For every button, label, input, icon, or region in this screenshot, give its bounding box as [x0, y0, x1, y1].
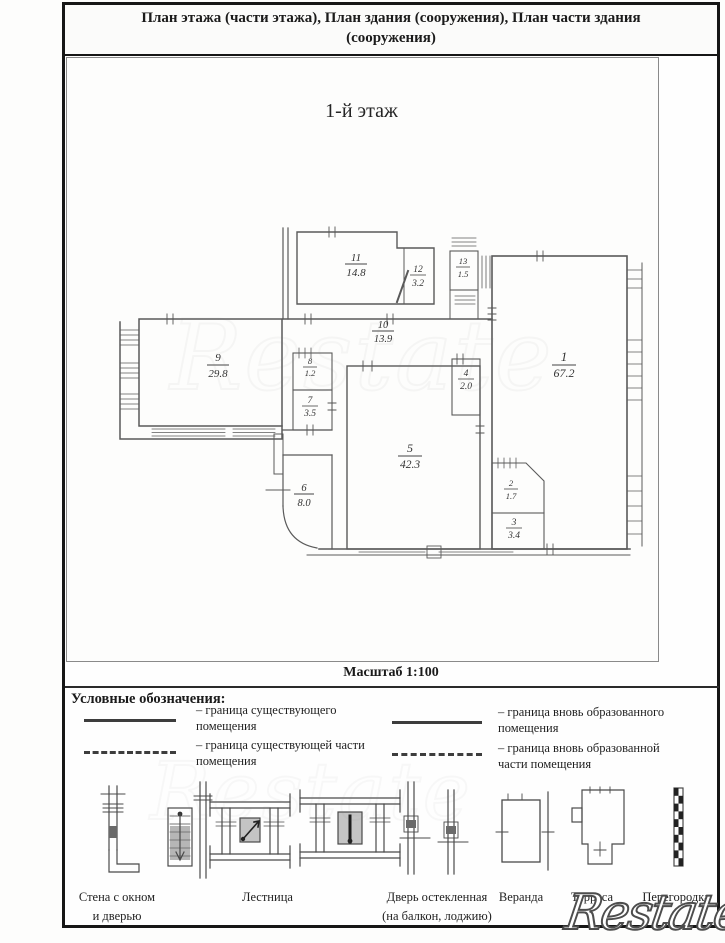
- svg-text:8.0: 8.0: [297, 498, 311, 509]
- room-6-walls: [266, 430, 332, 549]
- svg-text:67.2: 67.2: [554, 366, 575, 380]
- room-label-3: 33.4: [506, 518, 522, 541]
- svg-text:42.3: 42.3: [400, 459, 420, 471]
- room-label-6: 68.0: [294, 483, 314, 509]
- symbol-wall-window-door: [101, 786, 139, 872]
- floor-plan-box: 167.2 21.7 33.4 42.0 542.3 68.0 73.5 81.…: [66, 57, 659, 662]
- symbol-terrace: [572, 787, 624, 864]
- svg-text:10: 10: [378, 320, 389, 331]
- window-hatches-left: [120, 330, 275, 436]
- symbol-label-wall: Стена с окном и дверью: [78, 888, 156, 926]
- room-label-8: 81.2: [303, 356, 317, 378]
- legend-symbols: [62, 778, 722, 888]
- scale-label: Масштаб 1:100: [62, 665, 720, 681]
- svg-text:29.8: 29.8: [208, 368, 228, 380]
- symbol-stairs-1: [168, 782, 212, 878]
- svg-text:1: 1: [561, 349, 568, 364]
- symbol-stairs-2: [210, 794, 290, 868]
- legend-line-existing-part: [84, 751, 176, 754]
- legend-caption-new-part: – граница вновь образованной части помещ…: [498, 740, 676, 772]
- svg-text:1.2: 1.2: [305, 368, 316, 378]
- svg-text:2.0: 2.0: [460, 382, 472, 392]
- svg-text:1.7: 1.7: [506, 491, 517, 501]
- svg-text:5: 5: [407, 441, 413, 455]
- room-label-11: 1114.8: [345, 252, 367, 279]
- room-label-13: 131.5: [456, 256, 470, 279]
- symbol-partition: [674, 788, 683, 866]
- svg-text:13: 13: [459, 256, 468, 266]
- legend-caption-existing: – граница существующего помещения: [196, 702, 364, 734]
- floor-title: 1-й этаж: [66, 100, 657, 123]
- svg-text:12: 12: [413, 265, 423, 275]
- room-label-10: 1013.9: [372, 320, 394, 345]
- svg-text:6: 6: [301, 483, 307, 494]
- svg-text:7: 7: [308, 396, 314, 406]
- symbol-glazed-door: [400, 782, 468, 874]
- room-5-walls: [347, 366, 480, 549]
- svg-text:8: 8: [308, 356, 313, 366]
- svg-text:2: 2: [509, 478, 514, 488]
- watermark-restate: Restate: [562, 884, 725, 941]
- svg-text:9: 9: [215, 352, 221, 364]
- svg-text:13.9: 13.9: [374, 334, 393, 345]
- legend-caption-existing-part: – граница существующей части помещения: [196, 737, 374, 769]
- room-1-walls: [492, 256, 642, 549]
- document-title: План этажа (части этажа), План здания (с…: [62, 2, 720, 56]
- room-label-2: 21.7: [504, 478, 518, 501]
- room-label-9: 929.8: [207, 352, 229, 380]
- room-label-1: 167.2: [552, 349, 576, 380]
- legend-line-new: [392, 721, 482, 724]
- legend-divider: [65, 686, 719, 688]
- svg-text:1.5: 1.5: [458, 269, 469, 279]
- legend-line-existing: [84, 719, 176, 722]
- symbol-label-stairs: Лестница: [215, 888, 320, 907]
- svg-text:3: 3: [511, 518, 517, 528]
- document-page: План этажа (части этажа), План здания (с…: [0, 0, 725, 943]
- room-label-4: 42.0: [458, 369, 474, 392]
- svg-text:3.2: 3.2: [411, 279, 424, 289]
- window-hatches-right: [627, 270, 642, 534]
- symbol-stairs-3: [300, 790, 400, 866]
- svg-text:4: 4: [464, 369, 469, 379]
- svg-text:3.4: 3.4: [507, 531, 520, 541]
- bottom-wall: [307, 546, 630, 558]
- symbol-label-door: Дверь остекленная (на балкон, лоджию): [382, 888, 492, 926]
- svg-text:11: 11: [351, 252, 361, 264]
- legend-caption-new: – граница вновь образованного помещения: [498, 704, 670, 736]
- svg-text:3.5: 3.5: [303, 409, 316, 419]
- symbol-veranda: [496, 792, 554, 870]
- legend-line-new-part: [392, 753, 482, 756]
- room-label-5: 542.3: [398, 441, 422, 471]
- symbol-label-veranda: Веранда: [485, 888, 557, 907]
- svg-text:14.8: 14.8: [346, 267, 366, 279]
- floor-plan: 167.2 21.7 33.4 42.0 542.3 68.0 73.5 81.…: [67, 58, 658, 661]
- room-label-7: 73.5: [302, 396, 318, 419]
- room-labels: 167.2 21.7 33.4 42.0 542.3 68.0 73.5 81.…: [207, 252, 576, 541]
- room-9-walls: [120, 319, 282, 439]
- room-label-12: 123.2: [410, 265, 426, 289]
